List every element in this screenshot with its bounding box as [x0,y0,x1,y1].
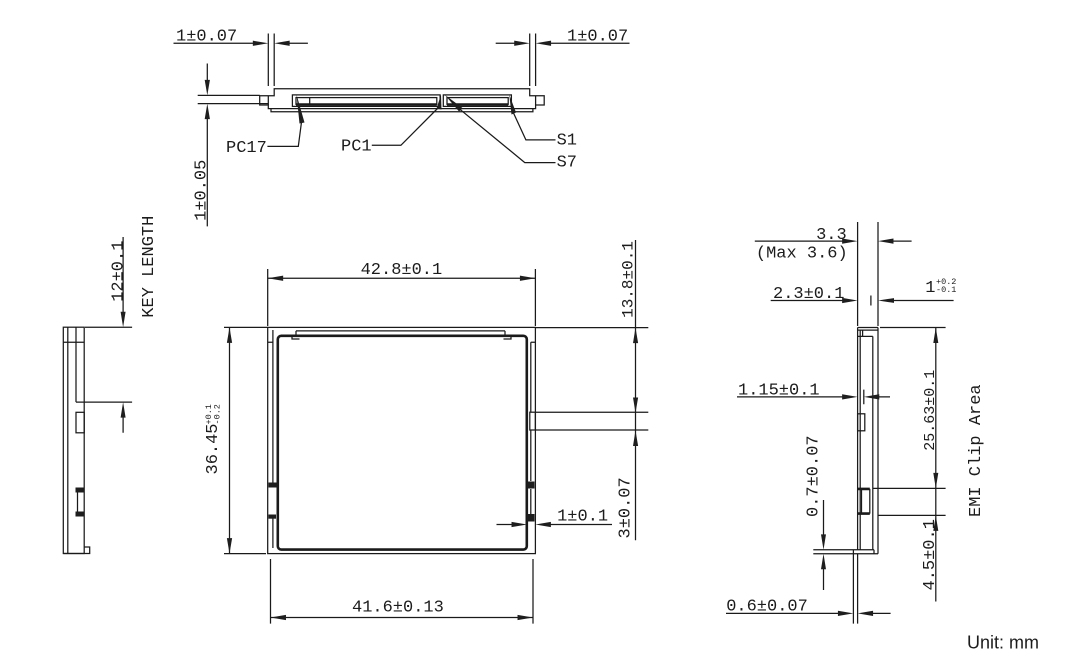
svg-text:1.15±0.1: 1.15±0.1 [738,381,820,400]
svg-text:36.45: 36.45 [204,423,223,474]
svg-text:PC17: PC17 [226,139,267,158]
svg-text:0.7±0.07: 0.7±0.07 [805,435,824,517]
svg-text:3±0.07: 3±0.07 [617,477,636,538]
svg-text:41.6±0.13: 41.6±0.13 [352,599,444,618]
svg-text:1: 1 [925,279,935,298]
svg-text:12±0.1: 12±0.1 [110,241,129,302]
svg-text:4.5±0.1: 4.5±0.1 [921,519,940,590]
svg-text:Unit: mm: Unit: mm [967,633,1039,653]
svg-text:25.63±0.1: 25.63±0.1 [922,370,939,451]
svg-text:(Max 3.6): (Max 3.6) [756,245,848,264]
svg-text:-0.2: -0.2 [213,404,223,424]
svg-text:0.6±0.07: 0.6±0.07 [726,598,808,617]
svg-text:1±0.05: 1±0.05 [193,160,212,221]
svg-text:PC1: PC1 [341,138,372,157]
svg-text:3.3: 3.3 [816,226,847,245]
svg-text:2.3±0.1: 2.3±0.1 [773,285,844,304]
svg-text:S1: S1 [557,131,577,150]
svg-text:EMI Clip Area: EMI Clip Area [967,384,986,517]
svg-text:1±0.1: 1±0.1 [557,508,608,527]
svg-text:-0.1: -0.1 [936,285,956,295]
svg-text:13.8±0.1: 13.8±0.1 [620,241,638,318]
svg-text:42.8±0.1: 42.8±0.1 [361,261,443,280]
svg-text:S7: S7 [557,154,577,173]
svg-text:KEY LENGTH: KEY LENGTH [140,216,159,318]
